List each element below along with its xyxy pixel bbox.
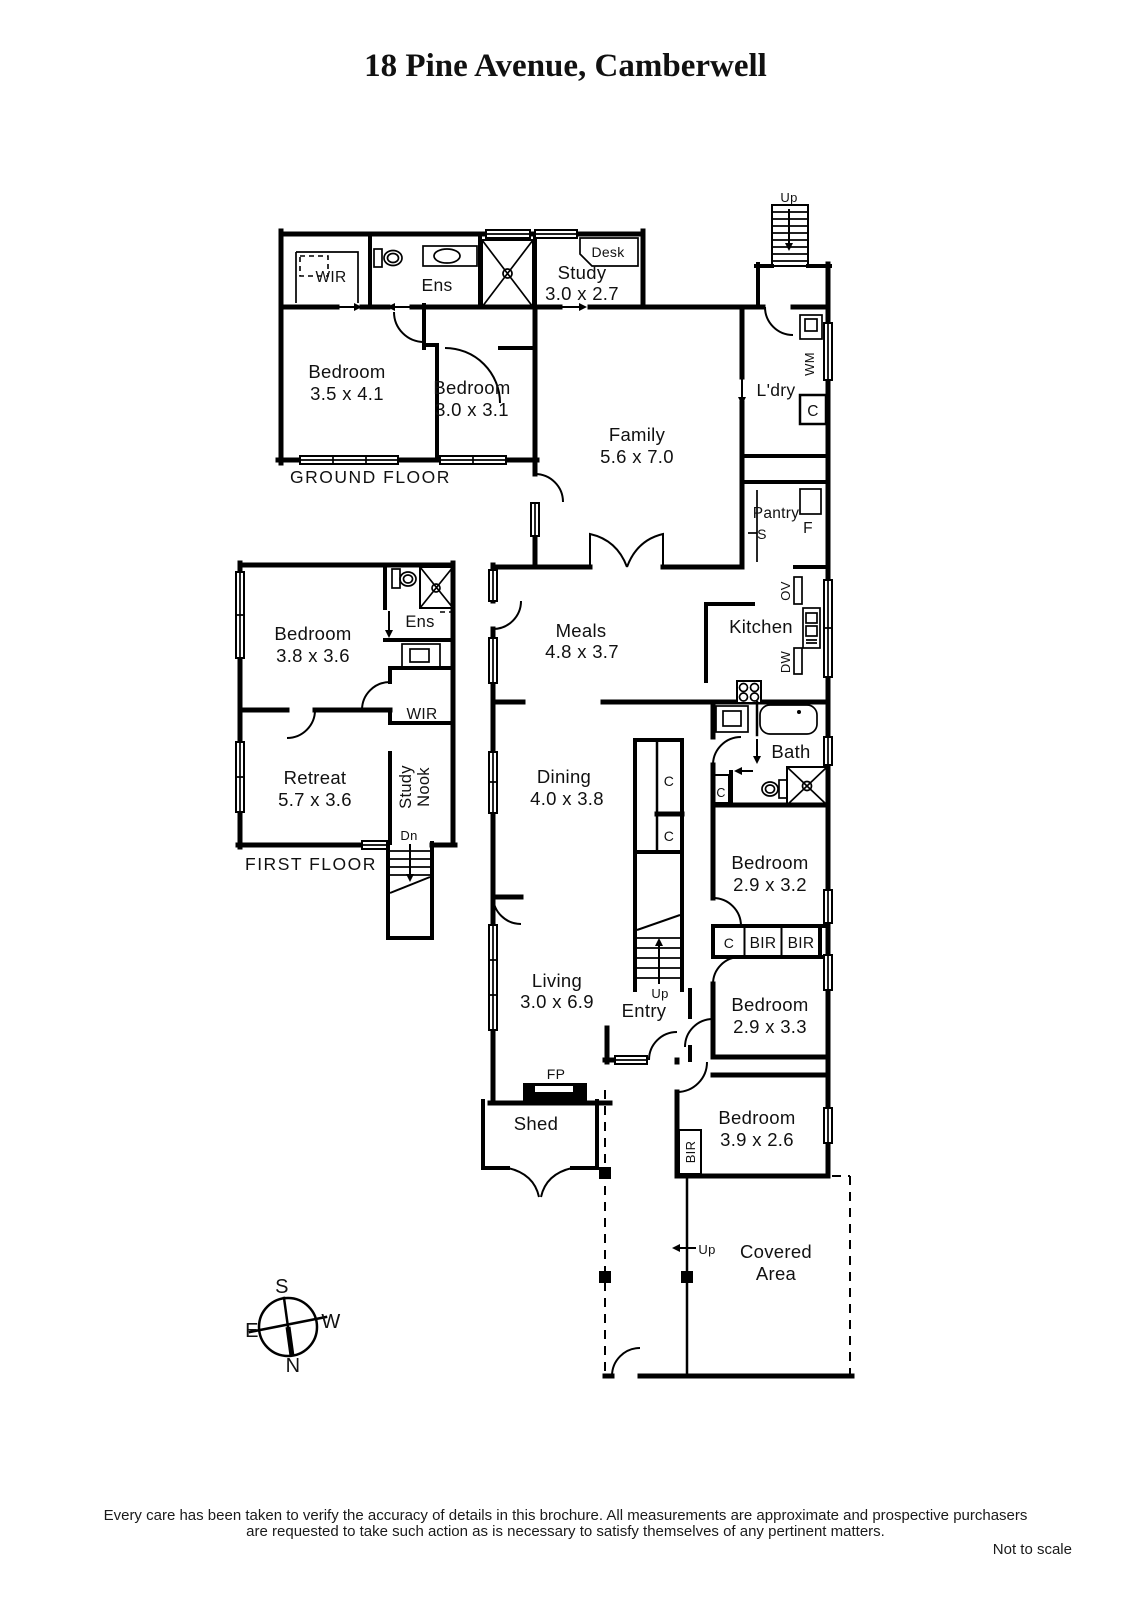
- laundry-label: L'dry: [757, 380, 796, 400]
- pantry-label: Pantry: [753, 505, 800, 522]
- window: [535, 230, 577, 238]
- door-arrow-ens: [387, 303, 412, 311]
- window: [489, 570, 497, 601]
- washing-machine-icon: [800, 315, 822, 339]
- bedroom-d-label: Bedroom: [731, 994, 808, 1015]
- ff-bedroom-label: Bedroom: [274, 623, 351, 644]
- hall-c-lower-label: C: [664, 828, 674, 844]
- shower-icon: [482, 240, 533, 307]
- meals-dims: 4.8 x 3.7: [545, 641, 619, 662]
- bedroom-e-dims: 3.9 x 2.6: [720, 1129, 794, 1150]
- internal-up-label: Up: [651, 986, 668, 1001]
- shower-icon: [420, 567, 453, 608]
- bedroom-a-label: Bedroom: [308, 361, 385, 382]
- dishwasher-icon: [794, 648, 802, 674]
- compass-south: S: [275, 1276, 289, 1298]
- covered-area-label-1: Covered: [740, 1241, 812, 1262]
- front-door-arc: [649, 1032, 677, 1060]
- window: [615, 1056, 647, 1064]
- fireplace-icon: [523, 1083, 587, 1104]
- meals-label: Meals: [556, 620, 607, 641]
- family-dims: 5.6 x 7.0: [600, 446, 674, 467]
- wm-label: WM: [802, 352, 817, 376]
- wir-door-arc: [362, 682, 390, 710]
- internal-stairs: [635, 852, 682, 990]
- bedroom-e-door-arc: [677, 1062, 707, 1092]
- oven-label: OV: [778, 581, 793, 600]
- living-label: Living: [532, 970, 582, 991]
- ff-ens-label: Ens: [405, 613, 434, 631]
- post: [599, 1167, 611, 1179]
- hall-cupboard-block: [635, 740, 682, 852]
- post: [599, 1271, 611, 1283]
- door-arrow-wir: [337, 303, 362, 311]
- ens-rail-dashed: [440, 612, 452, 630]
- bir-a-label: BIR: [750, 935, 777, 952]
- window: [486, 230, 530, 238]
- ff-bedroom-dims: 3.8 x 3.6: [276, 645, 350, 666]
- ens-down-arrow: [385, 611, 393, 638]
- covered-area-label-2: Area: [756, 1263, 797, 1284]
- bath-label: Bath: [771, 741, 810, 762]
- covered-up-label: Up: [698, 1242, 715, 1257]
- bath-left-arrow: [734, 767, 753, 775]
- hall-door-arc: [685, 1019, 713, 1047]
- window: [489, 638, 497, 683]
- bedroom-d-dims: 2.9 x 3.3: [733, 1016, 807, 1037]
- floorplan-page: 18 Pine Avenue, Camberwell: [0, 0, 1131, 1600]
- living-door-arc: [493, 897, 521, 924]
- double-arch-doors: [590, 534, 663, 567]
- window: [440, 456, 506, 464]
- bath-c-label: C: [716, 786, 725, 800]
- fireplace-label: FP: [547, 1066, 566, 1082]
- family-side-door-arc: [535, 474, 563, 502]
- cooktop-icon: [737, 681, 761, 703]
- ground-floor-label: GROUND FLOOR: [290, 467, 451, 487]
- window: [489, 925, 497, 1030]
- retreat-label: Retreat: [284, 767, 347, 788]
- down-stairs: [388, 843, 432, 938]
- study-nook-label-2: Nook: [415, 767, 433, 807]
- disclaimer-line-2: are requested to take such action as is …: [0, 1524, 1131, 1540]
- study-nook-label-1: Study: [397, 765, 415, 809]
- bedroom-a-door-arc: [394, 312, 424, 342]
- bath-door-arc: [713, 737, 741, 765]
- bath-down-arrow: [753, 739, 761, 764]
- not-to-scale-note: Not to scale: [0, 1541, 1072, 1558]
- window: [824, 580, 832, 677]
- rear-stairs: [772, 205, 808, 266]
- fridge-label: F: [803, 520, 813, 537]
- covered-door-arc: [612, 1348, 640, 1376]
- window: [824, 890, 832, 923]
- robe-c-label: C: [724, 935, 734, 951]
- floorplan-drawing: WIR Ens Study 3.0 x 2.7 Desk Bedroom 3.5…: [0, 0, 1131, 1600]
- disclaimer-line-1: Every care has been taken to verify the …: [0, 1508, 1131, 1524]
- living-dims: 3.0 x 6.9: [520, 991, 594, 1012]
- pantry-s-label: S: [757, 526, 767, 542]
- rear-door-arc: [765, 307, 793, 335]
- study-dims: 3.0 x 2.7: [545, 283, 619, 304]
- bathtub-icon: [760, 705, 817, 734]
- compass-west: W: [321, 1311, 340, 1333]
- basin-icon: [423, 246, 477, 266]
- bedroom-c-dims: 2.9 x 3.2: [733, 874, 807, 895]
- bir-b-label: BIR: [788, 935, 815, 952]
- compass-north: N: [286, 1355, 301, 1377]
- vanity-icon: [402, 644, 440, 668]
- ens-label: Ens: [421, 275, 452, 295]
- compass-east: E: [245, 1320, 259, 1342]
- dining-label: Dining: [537, 766, 591, 787]
- window: [824, 737, 832, 765]
- bedroom-e-bir-label: BIR: [683, 1141, 698, 1164]
- hall-c-upper-label: C: [664, 773, 674, 789]
- bedroom-c-label: Bedroom: [731, 852, 808, 873]
- door-arrow-study: [560, 303, 587, 311]
- wir-label: WIR: [315, 269, 346, 286]
- bedroom-b-label: Bedroom: [433, 377, 510, 398]
- compass-icon: [250, 1298, 326, 1356]
- family-label: Family: [609, 424, 666, 445]
- vanity-icon: [716, 706, 748, 732]
- bedroom-a-dims: 3.5 x 4.1: [310, 383, 384, 404]
- study-label: Study: [558, 262, 607, 283]
- oven-icon: [794, 577, 802, 604]
- rear-up-label: Up: [780, 190, 797, 205]
- window: [300, 456, 398, 464]
- toilet-icon: [374, 249, 402, 267]
- bedroom-d-door-arc: [713, 957, 740, 984]
- shed-label: Shed: [514, 1113, 558, 1134]
- window: [236, 572, 244, 658]
- window: [531, 503, 539, 536]
- window: [824, 1108, 832, 1143]
- desk-label: Desk: [591, 244, 625, 260]
- retreat-door-arc: [287, 710, 315, 738]
- window: [236, 742, 244, 812]
- toilet-icon: [392, 569, 416, 588]
- dishwasher-label: DW: [778, 650, 793, 673]
- entry-label: Entry: [622, 1000, 667, 1021]
- fridge-icon: [800, 489, 821, 514]
- covered-up-arrow: [672, 1244, 696, 1252]
- dn-label: Dn: [400, 828, 417, 843]
- window: [362, 841, 388, 849]
- kitchen-label: Kitchen: [729, 616, 793, 637]
- post: [681, 1271, 693, 1283]
- bedroom-c-door-arc: [713, 898, 741, 926]
- window: [824, 955, 832, 990]
- sink-icon: [803, 608, 820, 648]
- shower-icon: [787, 767, 827, 805]
- laundry-c-label: C: [807, 403, 819, 420]
- ff-wir-label: WIR: [406, 706, 437, 723]
- retreat-dims: 5.7 x 3.6: [278, 789, 352, 810]
- window: [489, 752, 497, 813]
- bedroom-e-label: Bedroom: [718, 1107, 795, 1128]
- bedroom-b-dims: 3.0 x 3.1: [435, 399, 509, 420]
- first-floor-label: FIRST FLOOR: [245, 854, 377, 874]
- laundry-arrow: [738, 376, 746, 405]
- meals-door-arc: [493, 601, 521, 629]
- window: [824, 323, 832, 380]
- dining-dims: 4.0 x 3.8: [530, 788, 604, 809]
- toilet-icon: [762, 780, 787, 798]
